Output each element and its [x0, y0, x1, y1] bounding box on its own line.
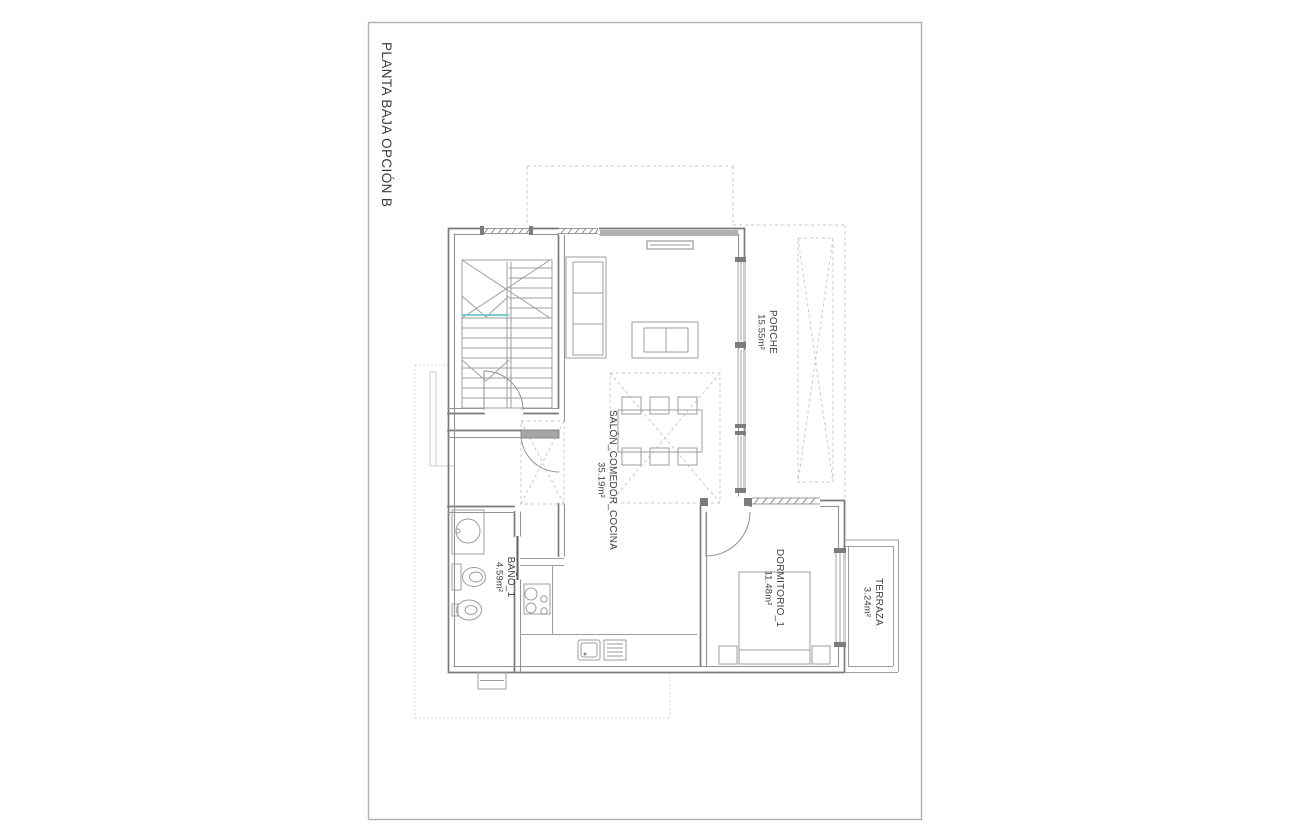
salon-window-panels — [735, 257, 746, 493]
plan-title: PLANTA BAJA OPCIÓN B — [379, 42, 394, 207]
room-label-porche: PORCHE 15.55m² — [757, 310, 779, 354]
floor-plan-svg: PLANTA BAJA OPCIÓN B — [0, 0, 1290, 840]
bedroom-high-window-band — [752, 496, 820, 507]
sheet-frame — [369, 23, 922, 820]
plan-title-text: PLANTA BAJA OPCIÓN B — [379, 42, 394, 207]
salon-top-window — [559, 225, 599, 235]
nightstand — [812, 646, 830, 664]
sheet-border — [369, 23, 922, 820]
room-area: 35.19m² — [597, 462, 608, 498]
room-name: DORMITORIO_1 — [774, 549, 785, 628]
room-area: 11.48m² — [764, 570, 775, 605]
coffee-table — [632, 322, 698, 358]
room-name: TERRAZA — [873, 578, 884, 626]
stair-window — [480, 225, 533, 235]
room-name: BAÑO_1 — [505, 557, 518, 598]
bedroom-window — [834, 548, 846, 647]
floor-plan-page: PLANTA BAJA OPCIÓN B — [0, 0, 1290, 840]
room-area: 3.24m² — [863, 587, 874, 617]
nightstand — [719, 646, 737, 664]
room-name: PORCHE — [767, 310, 778, 354]
sofa — [566, 257, 606, 358]
room-area: 15.55m² — [757, 314, 768, 350]
entrance-door-leaf — [521, 430, 559, 438]
room-label-bano: BAÑO_1 4.59m² — [495, 557, 519, 598]
room-area: 4.59m² — [495, 562, 506, 592]
room-name: SALÓN_COMEDOR_COCINA — [607, 410, 620, 550]
